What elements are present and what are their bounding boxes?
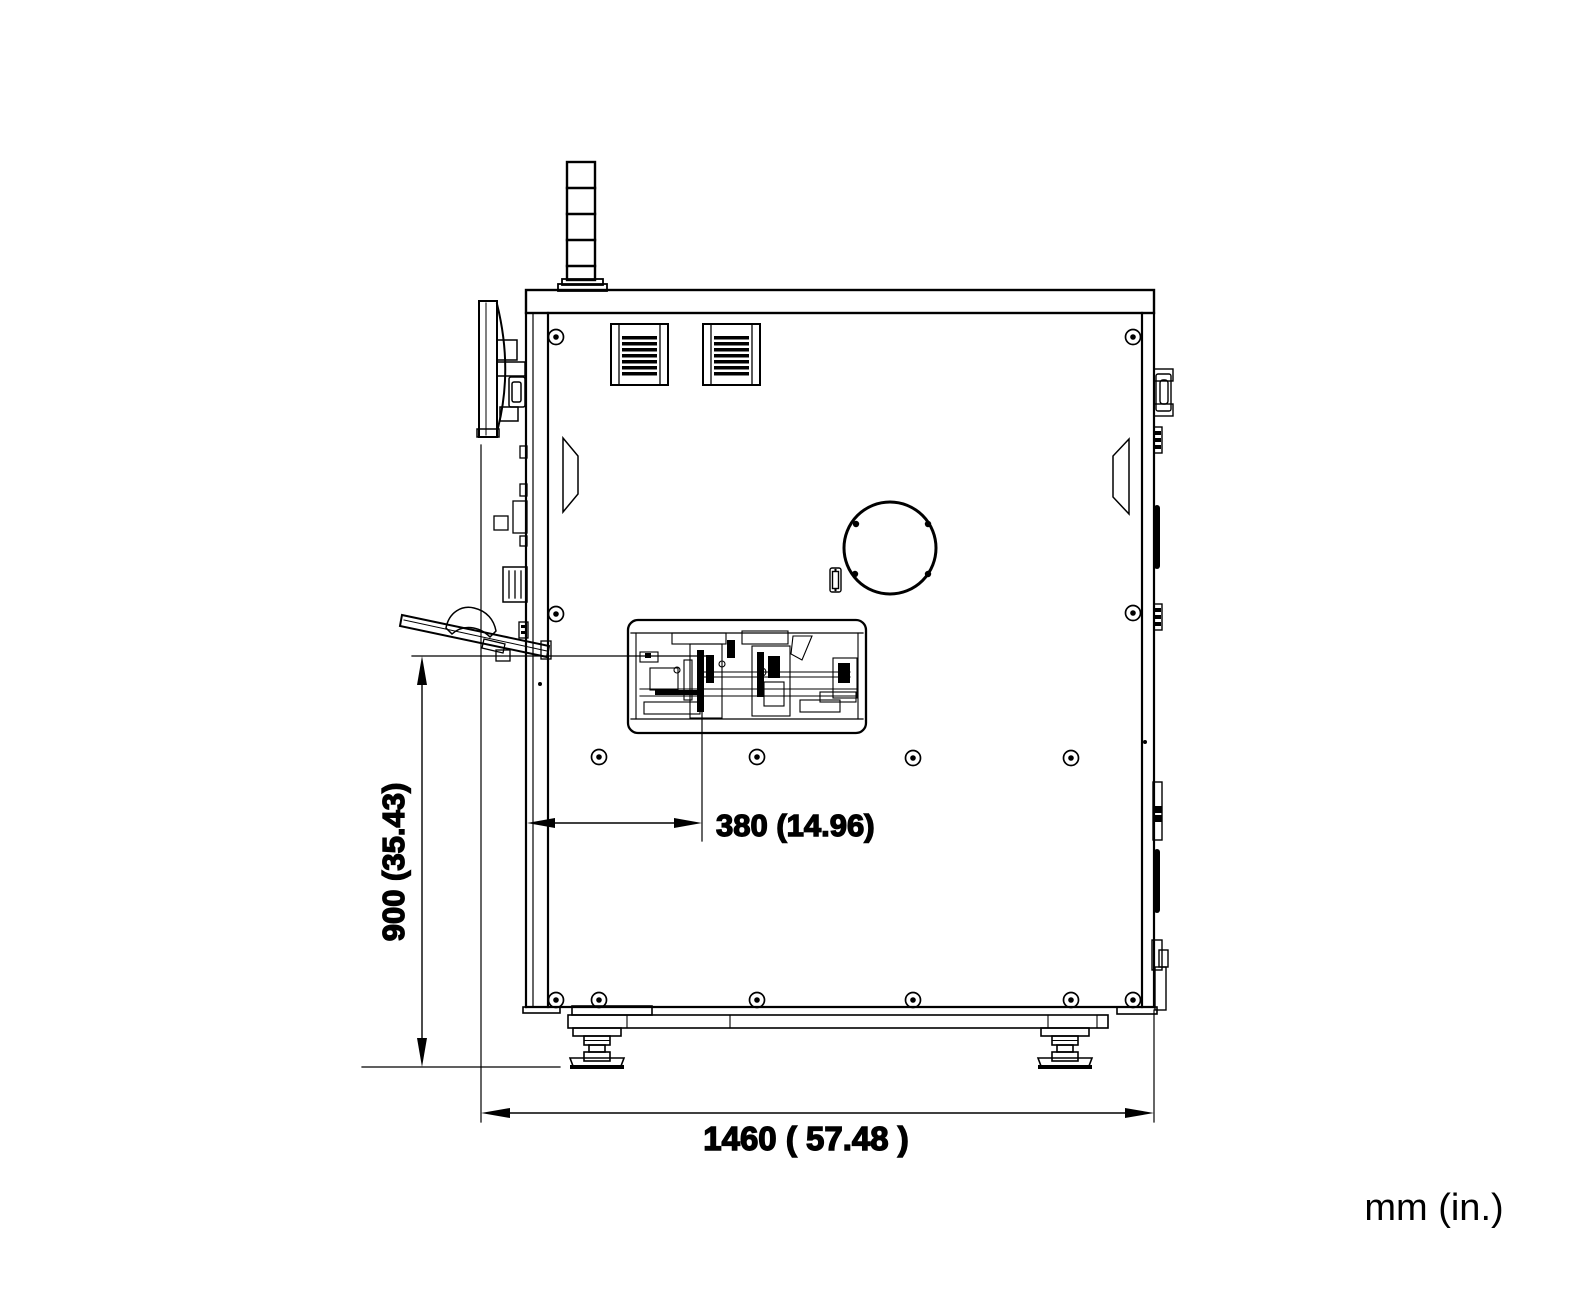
dimension-work-height: 900 (35.43) (362, 656, 706, 1067)
screw (750, 993, 765, 1008)
arrowhead-right (1125, 1108, 1154, 1118)
screw (1064, 993, 1079, 1008)
right-edge-fittings (1143, 369, 1173, 1010)
mechanism-window (628, 620, 866, 733)
recessed-handle-left (563, 438, 578, 512)
leveling-foot-right (1038, 1028, 1092, 1069)
machine-side-view-drawing: 900 (35.43) 380 (14.96) 1460 ( 57.48 ) m… (0, 0, 1576, 1301)
arrowhead-down (417, 1038, 427, 1067)
base-frame (523, 1006, 1157, 1028)
screw (549, 993, 564, 1008)
dimension-table-offset: 380 (14.96) (527, 708, 875, 843)
screw (1126, 606, 1141, 621)
leveling-foot-left (570, 1028, 624, 1069)
monitor (477, 301, 525, 437)
arrowhead-left (481, 1108, 510, 1118)
recessed-handle-right (1113, 439, 1129, 514)
screw (549, 330, 564, 345)
dim-label-table-offset: 380 (14.96) (716, 808, 875, 843)
units-label: mm (in.) (1364, 1187, 1503, 1229)
cabinet-body (526, 313, 1154, 1007)
fan-cutout (844, 502, 936, 594)
louver-vent-right (703, 324, 760, 385)
screw (549, 607, 564, 622)
signal-tower (558, 162, 607, 291)
screw (592, 750, 607, 765)
arrowhead-right (674, 818, 702, 828)
drawing-page: 900 (35.43) 380 (14.96) 1460 ( 57.48 ) m… (0, 0, 1576, 1301)
panel-connector (830, 568, 841, 592)
mechanism-internals (640, 631, 857, 718)
screw (1064, 751, 1079, 766)
louver-vent-left (611, 324, 668, 385)
top-plate (526, 290, 1154, 313)
screw (906, 993, 921, 1008)
screw (750, 750, 765, 765)
screw (1126, 330, 1141, 345)
screw (1126, 993, 1141, 1008)
screw (906, 751, 921, 766)
dim-label-work-height: 900 (35.43) (376, 783, 411, 942)
arrowhead-left (527, 818, 555, 828)
dim-label-overall-depth: 1460 ( 57.48 ) (703, 1120, 908, 1157)
arrowhead-up (417, 656, 427, 685)
dimension-overall-depth: 1460 ( 57.48 ) (481, 445, 1154, 1157)
